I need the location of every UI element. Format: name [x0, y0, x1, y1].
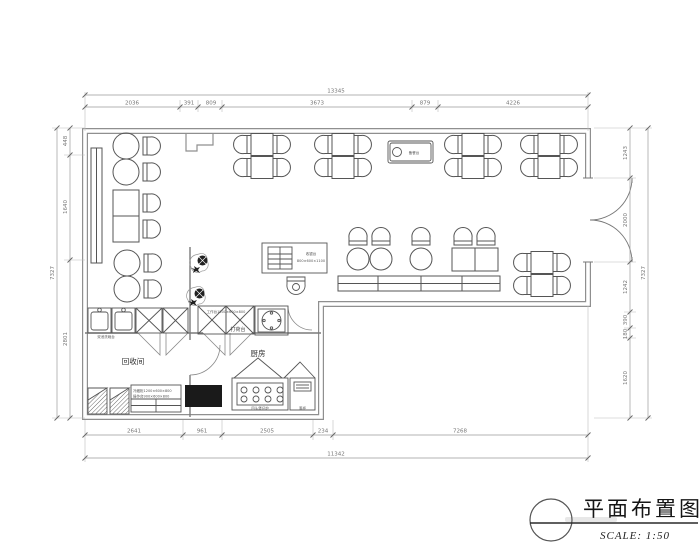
dim-bottom-seg: 961 — [197, 429, 208, 435]
swing-door-left — [138, 333, 188, 355]
dim-top-seg: 4226 — [506, 101, 520, 107]
dim-top-seg: 2036 — [125, 101, 139, 107]
bench-round-table — [410, 228, 432, 270]
dim-right-seg: 180 — [623, 328, 629, 339]
dim-top-seg: 3673 — [310, 101, 324, 107]
booth-group — [315, 134, 372, 179]
dim-top-total: 13345 — [327, 89, 345, 95]
dim-left-seg: 448 — [63, 135, 69, 146]
stove-label: 四头煲仔炉 — [251, 406, 269, 411]
dish-sinks — [88, 308, 135, 333]
kitchen-swing-doors — [138, 306, 312, 375]
stove-hood — [234, 358, 315, 378]
bench-square-tables — [452, 228, 498, 271]
dim-top-seg: 391 — [184, 101, 195, 107]
kitchen-label: 厨房 — [251, 348, 266, 358]
booth-group — [514, 252, 571, 297]
bar-counter — [262, 243, 327, 294]
dim-bottom-total: 11342 — [327, 452, 345, 458]
dim-bottom-seg: 7268 — [453, 429, 467, 435]
bench-round-table — [347, 228, 369, 270]
prep-table-label: 操作台900×600×800 — [133, 394, 169, 399]
disinfect-cabinets — [136, 308, 188, 333]
dim-right-seg: 2000 — [623, 213, 629, 227]
dim-right-seg: 390 — [623, 314, 629, 325]
solid-counter — [185, 385, 222, 407]
bar-label-1: 收银台 — [306, 251, 317, 256]
steam-label: 蒸柜 — [299, 406, 307, 411]
booth-group — [234, 134, 291, 179]
recycle-room-label: 回收间 — [122, 356, 145, 366]
extension-lines — [52, 92, 652, 462]
dim-top-seg: 879 — [420, 101, 431, 107]
bench-round-table — [370, 228, 392, 270]
bar-label-2: 800×600×1100 — [297, 259, 325, 263]
round-table-pair — [114, 250, 161, 302]
drawing-title: 平面布置图 — [583, 498, 700, 521]
window-bench — [338, 276, 500, 291]
dim-bottom-seg: 234 — [318, 429, 329, 435]
pass-counter-label: 打荷台 — [230, 326, 245, 333]
left-banquette — [91, 148, 102, 263]
kitchen-entry-arc — [288, 306, 312, 330]
fryer-units — [88, 388, 129, 414]
sink-label: 双池洗碗台 — [97, 334, 115, 339]
dim-left-seg: 2801 — [63, 332, 69, 346]
partition-door-arc — [190, 345, 220, 375]
bar-stool — [287, 277, 305, 294]
booth-group — [445, 134, 502, 179]
dim-bottom-seg: 2641 — [127, 429, 141, 435]
soup-basin — [255, 306, 288, 335]
stove-range — [232, 378, 288, 410]
dim-left-seg: 1640 — [63, 200, 69, 214]
service-station-label: 备餐台 — [409, 150, 420, 155]
worktop-label: 工作台1500×600×800 — [207, 309, 246, 314]
swing-door-right — [203, 333, 252, 355]
plant — [190, 253, 209, 273]
round-table-pair — [113, 133, 160, 185]
wall-notch — [186, 134, 213, 151]
dim-left-total: 7327 — [50, 266, 56, 280]
dim-top-seg: 809 — [206, 101, 217, 107]
square-table-pair — [113, 190, 160, 242]
floor-plan-page: 备餐台 收银台 800×600×1100 — [0, 0, 700, 560]
dim-right-seg: 1620 — [623, 371, 629, 385]
dim-right-seg: 1243 — [623, 146, 629, 160]
dim-right-seg: 1242 — [623, 280, 629, 294]
dim-right-total: 7327 — [641, 266, 647, 280]
cold-cabinet-label: 冷藏柜1200×600×800 — [133, 388, 172, 393]
dining-furniture — [91, 133, 577, 306]
drawing-scale: SCALE: 1:50 — [600, 530, 670, 542]
steam-cabinet — [290, 378, 315, 410]
dimension-texts: 13345 2036 391 809 3673 879 4226 2641 96… — [50, 89, 647, 458]
exterior-walls — [85, 131, 593, 417]
dim-bottom-seg: 2505 — [260, 429, 274, 435]
title-block: 平面布置图 SCALE: 1:50 — [530, 498, 700, 542]
booth-group — [521, 134, 578, 179]
